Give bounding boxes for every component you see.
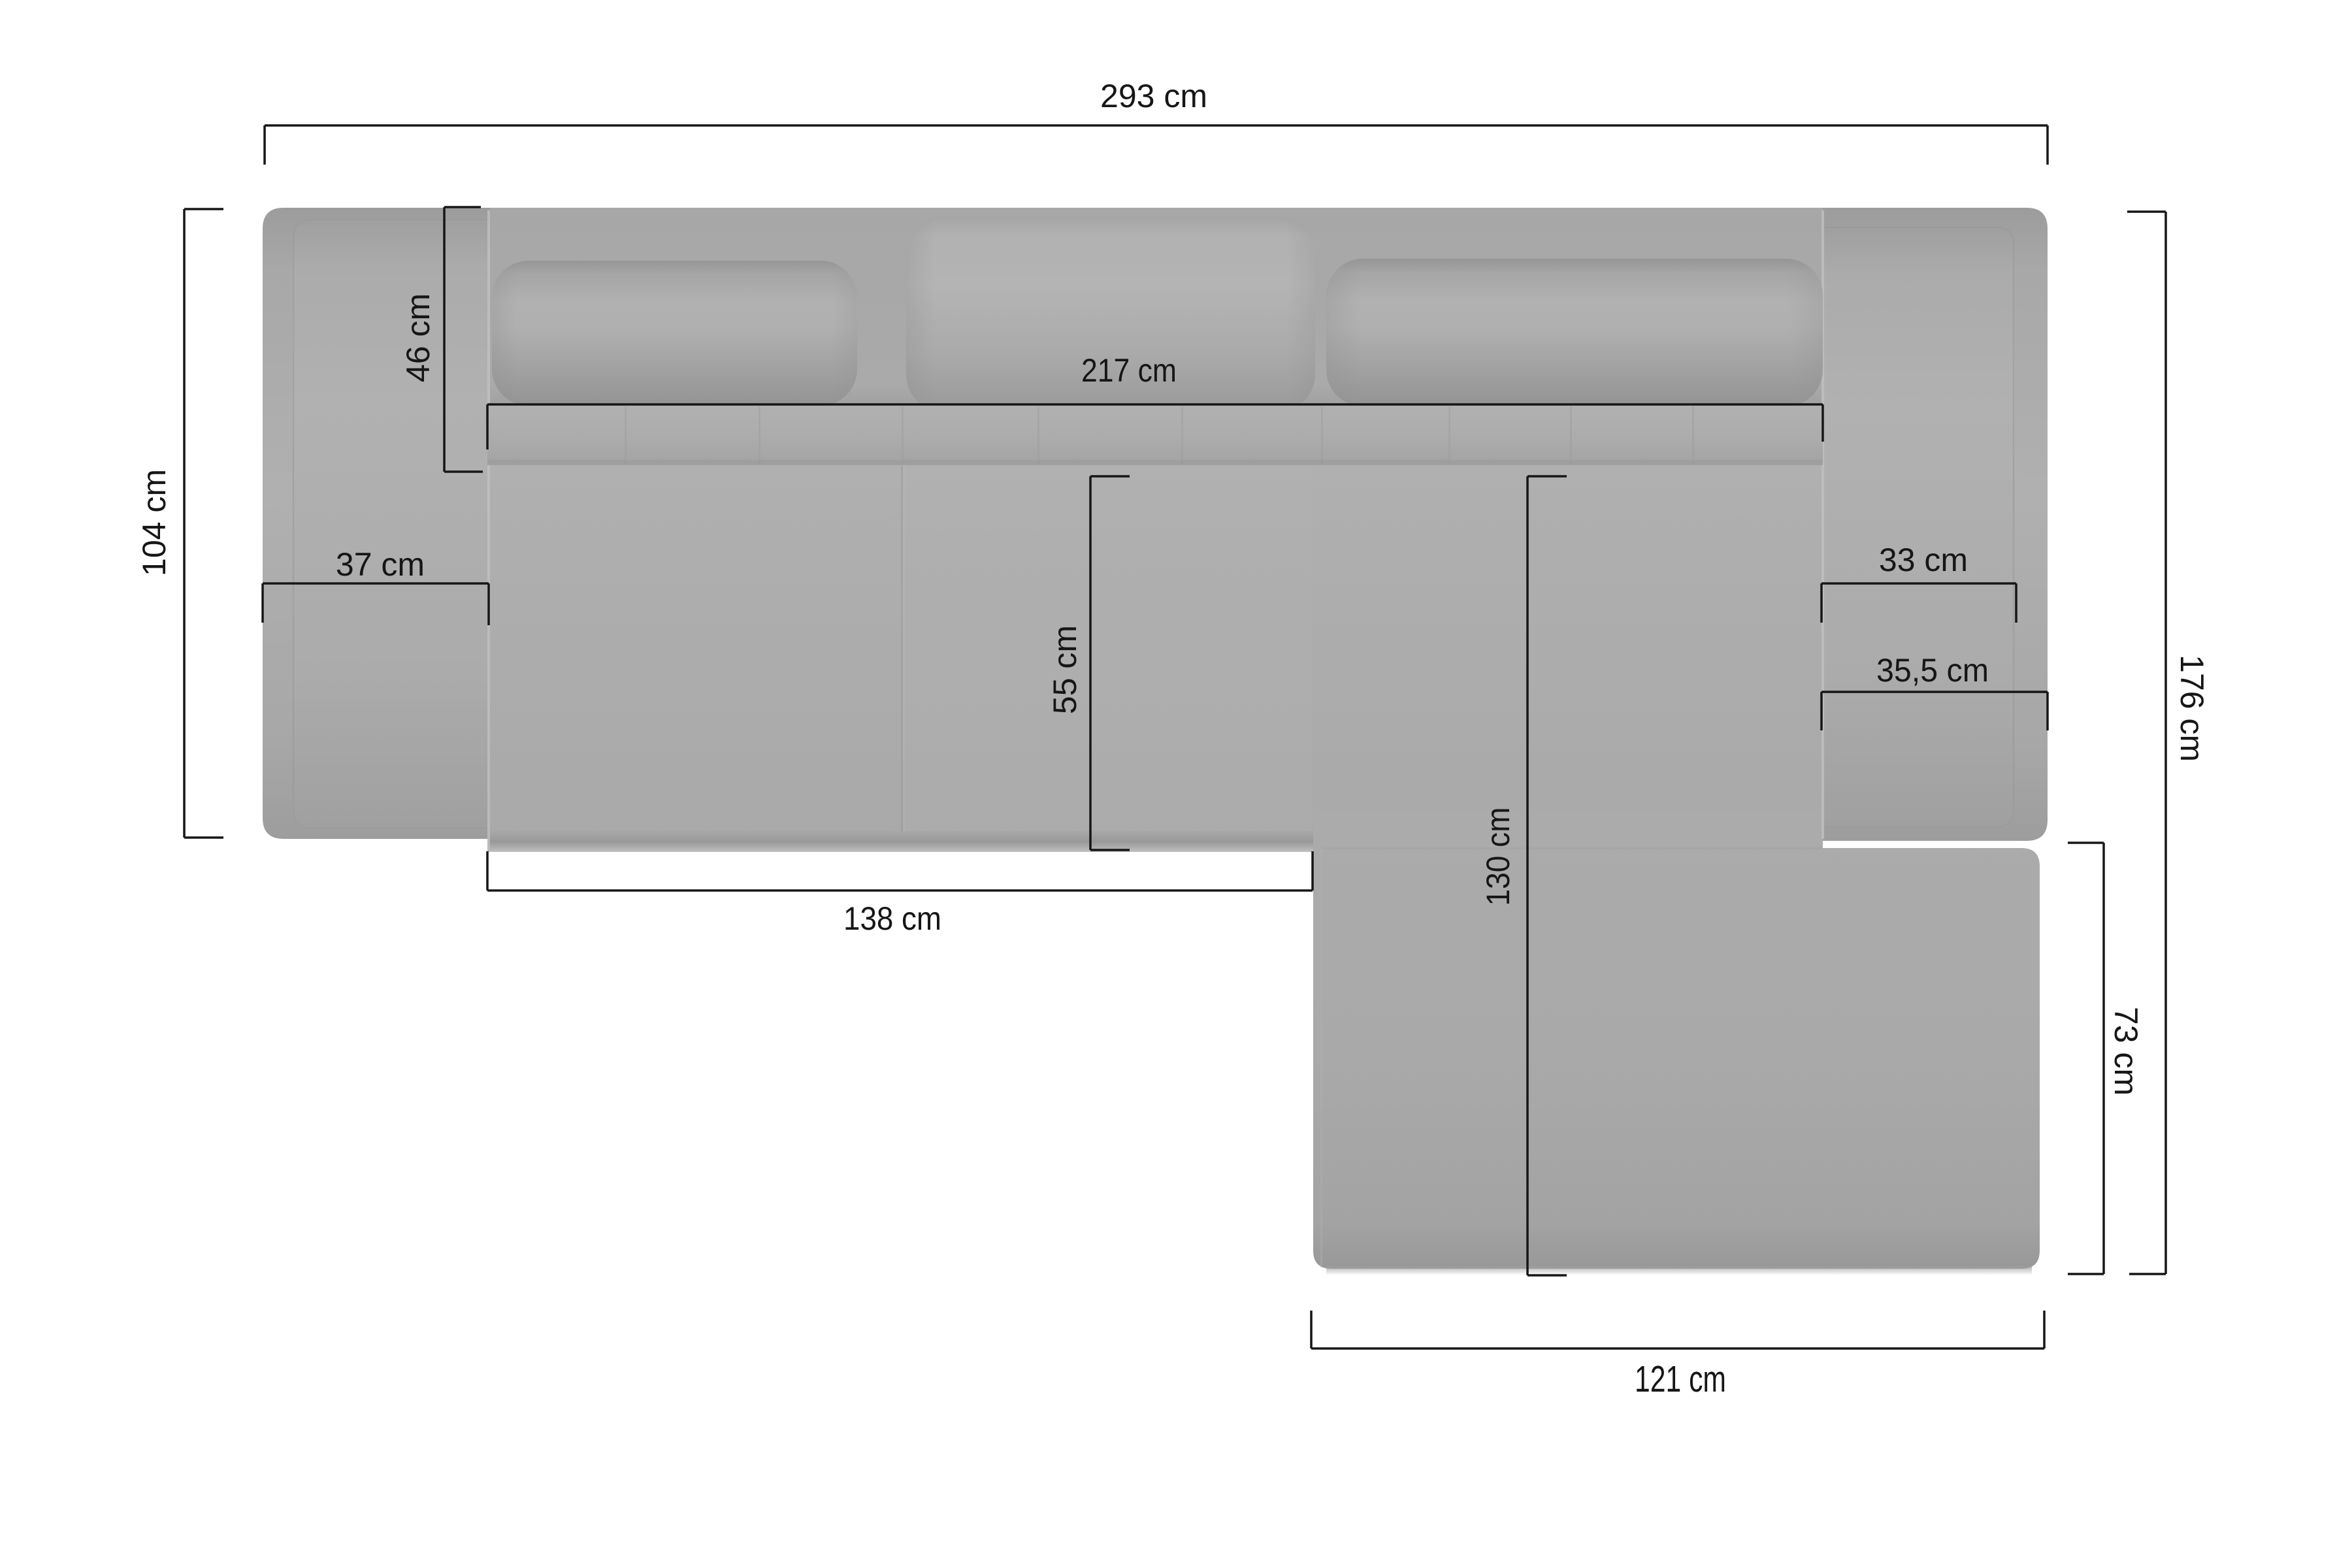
svg-text:35,5 cm: 35,5 cm bbox=[1876, 652, 1989, 689]
svg-text:73 cm: 73 cm bbox=[2108, 1007, 2144, 1096]
svg-text:176 cm: 176 cm bbox=[2174, 655, 2210, 762]
svg-text:217 cm: 217 cm bbox=[1081, 352, 1177, 389]
svg-text:33 cm: 33 cm bbox=[1879, 542, 1968, 578]
svg-text:293 cm: 293 cm bbox=[1100, 78, 1207, 114]
svg-text:130 cm: 130 cm bbox=[1480, 808, 1516, 906]
svg-text:121 cm: 121 cm bbox=[1635, 1358, 1726, 1400]
svg-text:37 cm: 37 cm bbox=[336, 546, 425, 583]
svg-text:104 cm: 104 cm bbox=[136, 469, 172, 576]
svg-text:46 cm: 46 cm bbox=[400, 293, 436, 382]
svg-text:55 cm: 55 cm bbox=[1047, 625, 1083, 714]
svg-text:138 cm: 138 cm bbox=[843, 900, 941, 937]
